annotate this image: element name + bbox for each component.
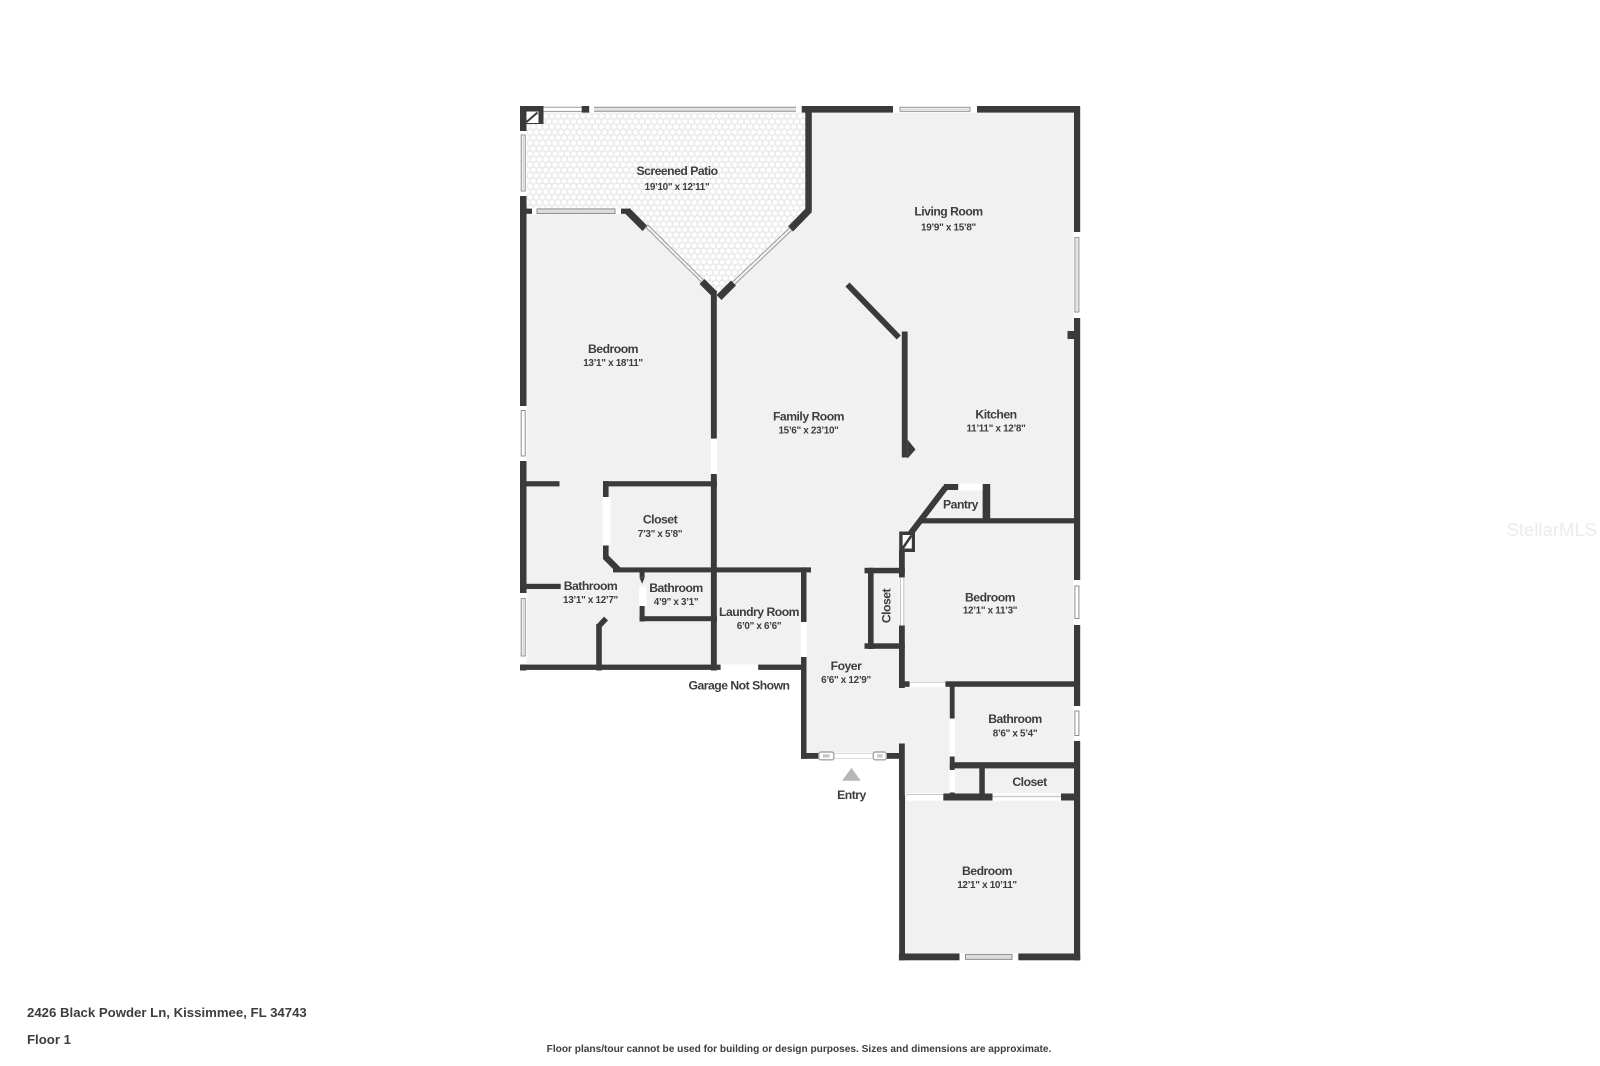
svg-text:Bathroom: Bathroom (988, 712, 1042, 726)
svg-text:Kitchen: Kitchen (975, 408, 1016, 422)
svg-text:Entry: Entry (837, 788, 866, 802)
svg-text:6’0" x 6’6": 6’0" x 6’6" (737, 621, 782, 632)
svg-text:Closet: Closet (879, 588, 893, 623)
svg-text:19’10" x 12’11": 19’10" x 12’11" (645, 182, 710, 193)
svg-text:19’9" x 15’8": 19’9" x 15’8" (921, 223, 977, 234)
svg-text:Bedroom: Bedroom (965, 591, 1016, 605)
svg-text:Laundry Room: Laundry Room (719, 605, 800, 619)
svg-text:7’3" x 5’8": 7’3" x 5’8" (638, 529, 683, 540)
svg-text:Floor 1: Floor 1 (27, 1032, 71, 1047)
svg-text:13’1" x 12’7": 13’1" x 12’7" (563, 595, 619, 606)
svg-text:Pantry: Pantry (943, 498, 979, 512)
svg-text:12’1" x 11’3": 12’1" x 11’3" (963, 606, 1018, 617)
svg-text:Floor plans/tour cannot be use: Floor plans/tour cannot be used for buil… (547, 1044, 1052, 1055)
svg-text:StellarMLS: StellarMLS (1507, 519, 1597, 540)
svg-text:Closet: Closet (1012, 775, 1047, 789)
svg-text:13’1" x 18’11": 13’1" x 18’11" (583, 358, 643, 369)
svg-text:Bathroom: Bathroom (564, 579, 618, 593)
svg-text:Living Room: Living Room (914, 205, 983, 219)
svg-text:4’9" x 3’1": 4’9" x 3’1" (654, 597, 699, 608)
svg-text:Closet: Closet (643, 513, 678, 527)
svg-text:11’11" x 12’8": 11’11" x 12’8" (967, 424, 1027, 435)
svg-text:Garage Not Shown: Garage Not Shown (688, 679, 789, 693)
svg-text:12’1" x 10’11": 12’1" x 10’11" (957, 880, 1017, 891)
svg-text:6’6" x 12’9": 6’6" x 12’9" (821, 675, 871, 686)
svg-text:Bedroom: Bedroom (962, 864, 1013, 878)
svg-text:Family Room: Family Room (773, 410, 845, 424)
svg-text:8’6" x 5’4": 8’6" x 5’4" (993, 729, 1038, 740)
svg-text:2426 Black Powder Ln, Kissimme: 2426 Black Powder Ln, Kissimmee, FL 3474… (27, 1005, 307, 1020)
svg-text:15’6" x 23’10": 15’6" x 23’10" (778, 426, 839, 437)
svg-text:Bathroom: Bathroom (649, 581, 703, 595)
svg-text:Foyer: Foyer (831, 659, 862, 673)
svg-text:Screened Patio: Screened Patio (636, 164, 717, 178)
svg-text:Bedroom: Bedroom (588, 342, 639, 356)
